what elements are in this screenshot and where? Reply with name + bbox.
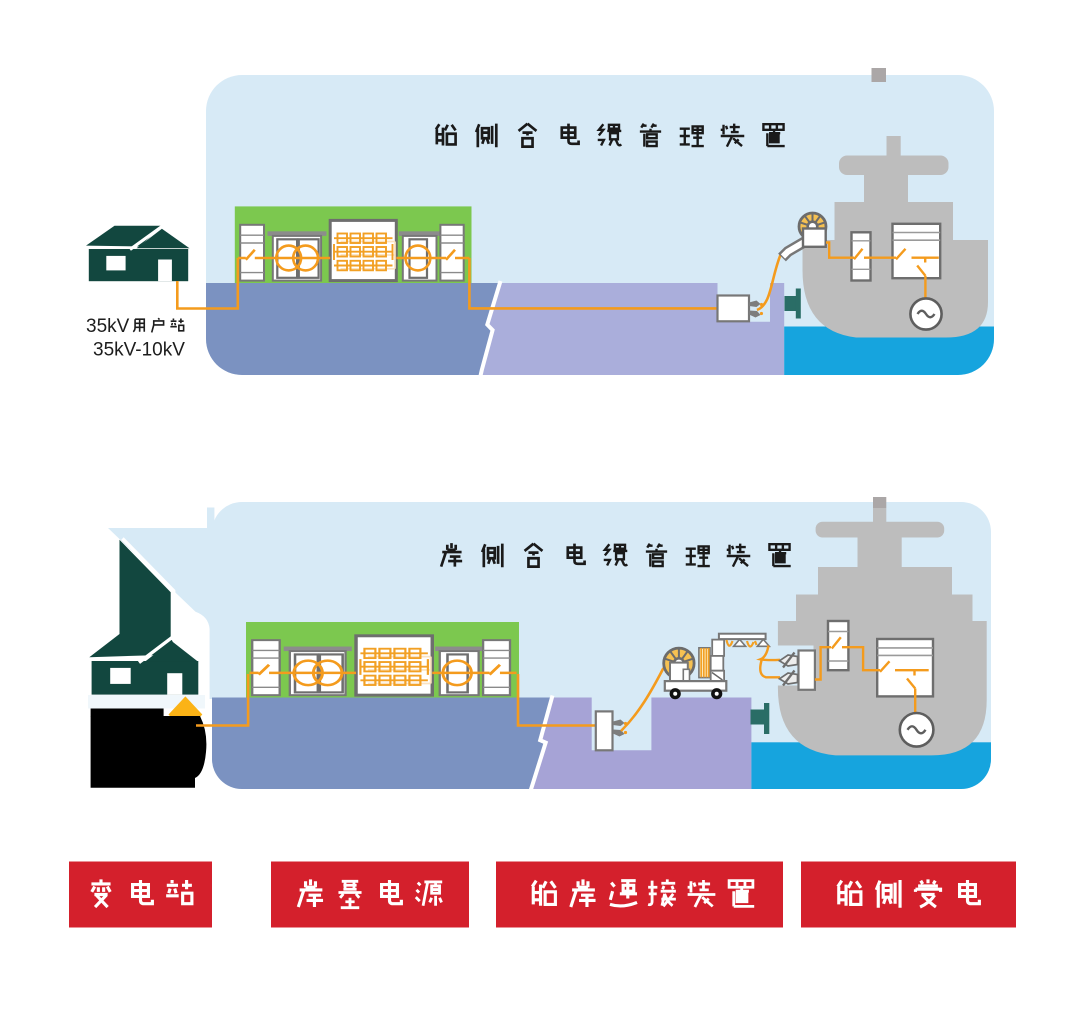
svg-text:35kV-10kV: 35kV-10kV xyxy=(93,340,185,361)
svg-text:35kV: 35kV xyxy=(86,316,130,337)
